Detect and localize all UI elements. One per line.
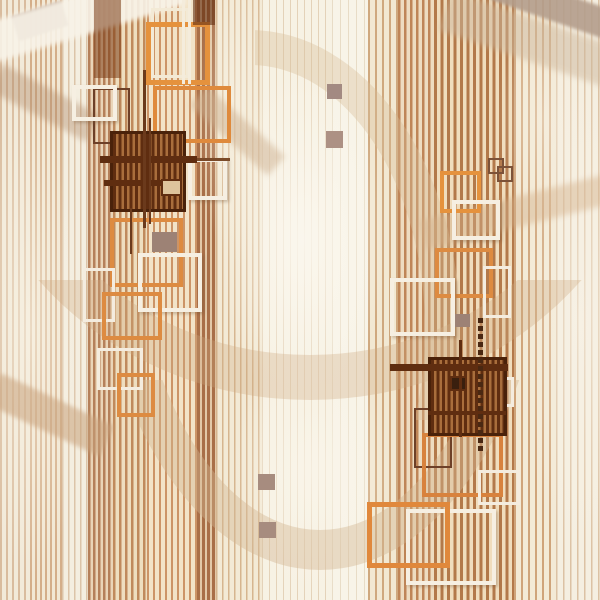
plaid-inner-square (161, 179, 182, 196)
outline-square (367, 502, 450, 568)
chain-dot (478, 318, 483, 323)
plaid-square (110, 131, 186, 212)
chain-dot (478, 358, 483, 363)
accent-line (182, 0, 185, 84)
chain-dot (478, 334, 483, 339)
chain-dot (478, 430, 483, 435)
accent-line (188, 0, 191, 84)
filled-square (258, 474, 275, 490)
outline-square (452, 200, 500, 240)
outline-square (497, 166, 513, 182)
abstract-pattern-canvas (0, 0, 600, 600)
chain-dot (478, 382, 483, 387)
chain-dot (478, 342, 483, 347)
filled-square (259, 522, 276, 538)
chain-dot (478, 422, 483, 427)
chain-dot (478, 438, 483, 443)
accent-line (94, 0, 121, 78)
chain-dot (478, 374, 483, 379)
accent-line (459, 340, 462, 437)
chain-dot (478, 326, 483, 331)
chain-dot (478, 446, 483, 451)
accent-line (390, 364, 508, 371)
chain-dot (478, 390, 483, 395)
accent-line (197, 158, 230, 161)
filled-square (455, 314, 470, 327)
chain-dot (478, 350, 483, 355)
accent-line (428, 411, 506, 415)
outline-square (483, 266, 511, 318)
outline-square (478, 470, 520, 505)
accent-line (193, 0, 215, 25)
dot-chain (478, 318, 483, 448)
outline-square (188, 158, 227, 200)
outline-square (390, 278, 455, 336)
accent-line (130, 208, 132, 254)
filled-square (327, 84, 342, 99)
accent-line (149, 118, 151, 224)
outline-square (102, 292, 162, 340)
filled-square (152, 232, 177, 252)
outline-square (72, 85, 117, 121)
chain-dot (478, 406, 483, 411)
filled-square (326, 131, 343, 148)
chain-dot (478, 414, 483, 419)
outline-square (117, 373, 155, 417)
accent-line (143, 70, 146, 228)
chain-dot (478, 366, 483, 371)
accent-line (104, 180, 162, 186)
outline-square (146, 22, 210, 85)
chain-dot (478, 398, 483, 403)
